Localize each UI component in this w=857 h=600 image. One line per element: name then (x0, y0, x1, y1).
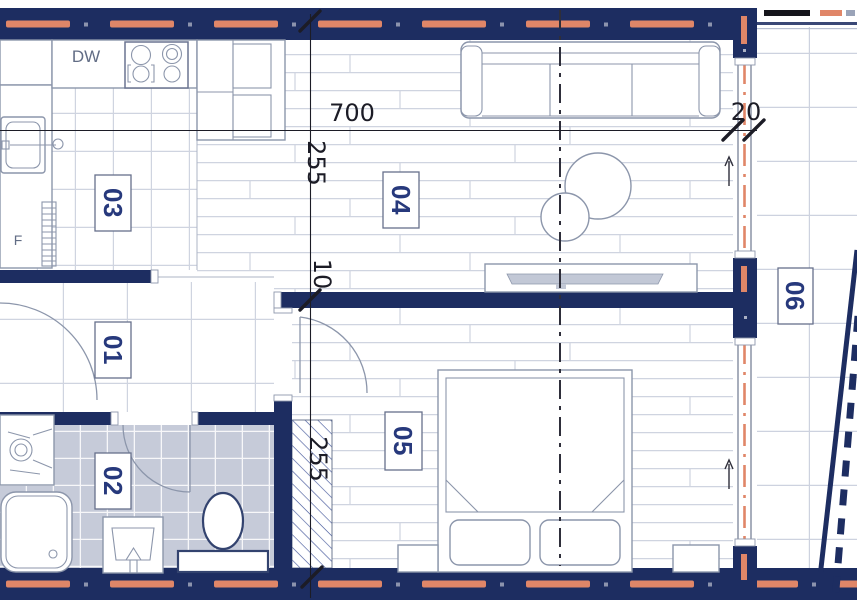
room-number-hall: 01 (98, 335, 128, 365)
door-jamb (274, 395, 292, 401)
room-number-bedroom: 05 (388, 426, 418, 456)
nightstand-left (398, 545, 438, 572)
fridge-label: F (14, 232, 23, 248)
floor-plan-canvas: 01 02 03 04 05 06 700 20 255 10 255 DW (0, 0, 857, 600)
stove (125, 42, 188, 88)
door-jamb (192, 412, 198, 425)
room-label-living-room: 04 (383, 172, 419, 228)
wall-cap (151, 270, 158, 283)
room-label-bathroom: 02 (95, 453, 131, 509)
hall-floor (0, 282, 274, 412)
bathtub (1, 492, 72, 572)
pillow-left (450, 520, 530, 565)
dim-top-width: 700 (329, 99, 375, 127)
bathroom-wall-right (192, 412, 274, 425)
washing-machine (0, 415, 54, 485)
door-jamb (111, 412, 118, 425)
nightstand-right (673, 545, 719, 572)
kitchen-tall-units (197, 40, 285, 140)
pillow-right (540, 520, 620, 565)
kitchen-hall-wall (0, 270, 158, 283)
kitchen-cabinet-topleft (0, 40, 52, 85)
room-label-balcony: 06 (778, 268, 813, 324)
dim-partition: 10 (308, 259, 336, 290)
room-number-balcony: 06 (780, 281, 810, 311)
balcony-top-line2 (757, 28, 857, 29)
balcony-top-line (757, 22, 857, 25)
pier-bottom-insulation (741, 554, 747, 580)
door-jamb (274, 308, 292, 313)
balcony-top-dash-black (764, 10, 810, 16)
wall-cap (274, 292, 281, 308)
bedroom-left-wall (274, 395, 292, 568)
pier-top-insulation (741, 16, 747, 44)
dim-exterior-wall: 20 (731, 98, 762, 126)
tv-console (485, 264, 697, 292)
room-number-bathroom: 02 (98, 466, 128, 496)
room-label-kitchen: 03 (95, 175, 131, 231)
tv (507, 274, 663, 284)
bathroom-sink (103, 517, 163, 573)
living-bedroom-wall (274, 292, 737, 308)
dim-living-depth: 255 (302, 140, 330, 186)
floor-plan: 01 02 03 04 05 06 700 20 255 10 255 DW (0, 0, 857, 600)
room-number-living-room: 04 (386, 185, 416, 215)
window-lower (733, 338, 757, 546)
sofa (461, 42, 720, 118)
pier-top-dot (743, 49, 746, 52)
top-exterior-wall (0, 8, 757, 40)
room-label-bedroom: 05 (385, 412, 422, 470)
coffee-table-small (541, 193, 589, 241)
room-number-kitchen: 03 (98, 188, 128, 218)
balcony-top-dash-accent (820, 10, 842, 16)
room-label-hall: 01 (95, 322, 131, 378)
balcony-top-dash-grey (846, 10, 855, 16)
pier-middle-dot (744, 316, 747, 319)
kitchen-counter-left (0, 85, 52, 268)
dim-bedroom-depth: 255 (304, 436, 332, 482)
pier-middle-insulation (741, 266, 747, 292)
dishwasher-label: DW (72, 47, 100, 66)
window-upper (733, 58, 757, 258)
